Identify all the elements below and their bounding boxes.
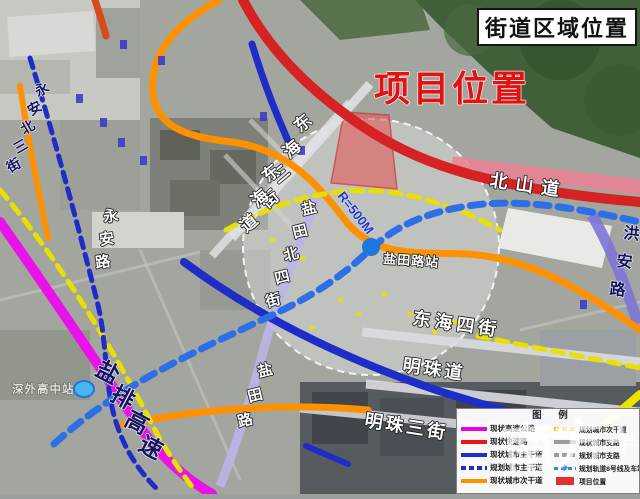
legend-label: 项目位置 <box>579 476 606 486</box>
legend-label: 现状高速公路 <box>490 423 535 434</box>
station-diamond-icon: ◆ <box>561 462 568 472</box>
legend: 图 例 现状高速公路 现状快速路 现状城市主干道 规划城市主干道 现状城市次干道 <box>456 408 640 494</box>
legend-row: 规划城市支路 <box>554 448 640 461</box>
legend-swatch-metro: ◆ <box>554 463 576 473</box>
legend-label: 现状城市支路 <box>579 437 620 447</box>
legend-swatch-planned-secondary <box>554 424 576 434</box>
legend-label: 规划城市次干道 <box>579 424 627 434</box>
legend-label: 现状城市主干道 <box>490 449 543 460</box>
legend-swatch-project <box>554 476 576 486</box>
legend-title: 图 例 <box>461 410 639 422</box>
legend-swatch-planned-branch <box>554 450 576 460</box>
legend-row: 规划城市次干道 <box>554 422 640 435</box>
legend-swatch-expressway <box>461 424 487 434</box>
legend-row: 现状城市主干道 <box>461 448 550 461</box>
legend-label: 现状快速路 <box>490 436 528 447</box>
station-label-shenwai: 深外高中站 <box>12 382 75 396</box>
station-dot-yantian-road <box>362 238 380 256</box>
legend-row: 规划城市主干道 <box>461 461 550 474</box>
legend-label: 规划城市支路 <box>579 450 620 460</box>
legend-swatch-branch <box>554 437 576 447</box>
legend-row: 现状快速路 <box>461 435 550 448</box>
legend-row: 现状高速公路 <box>461 422 550 435</box>
legend-swatch-secondary <box>461 476 487 486</box>
project-location-label: 项目位置 <box>374 68 530 109</box>
legend-row: 现状城市支路 <box>554 435 640 448</box>
legend-swatch-planned-arterial <box>461 463 487 473</box>
legend-left-column: 现状高速公路 现状快速路 现状城市主干道 规划城市主干道 现状城市次干道 <box>461 422 550 487</box>
legend-label: 规划城市主干道 <box>490 462 543 473</box>
legend-swatch-fastroad <box>461 437 487 447</box>
station-dot-shenwai <box>74 381 94 397</box>
legend-row: 现状城市次干道 <box>461 474 550 487</box>
legend-label: 现状城市次干道 <box>490 475 543 486</box>
legend-row: ◆ 规划轨道8号线及车站 <box>554 461 640 474</box>
legend-label: 规划轨道8号线及车站 <box>579 463 640 473</box>
legend-row: 项目位置 <box>554 474 640 487</box>
map-title: 街道区域位置 <box>477 8 637 46</box>
legend-right-column: 规划城市次干道 现状城市支路 规划城市支路 ◆ 规划轨道8号线及车站 项目位置 <box>554 422 640 487</box>
legend-swatch-arterial <box>461 450 487 460</box>
